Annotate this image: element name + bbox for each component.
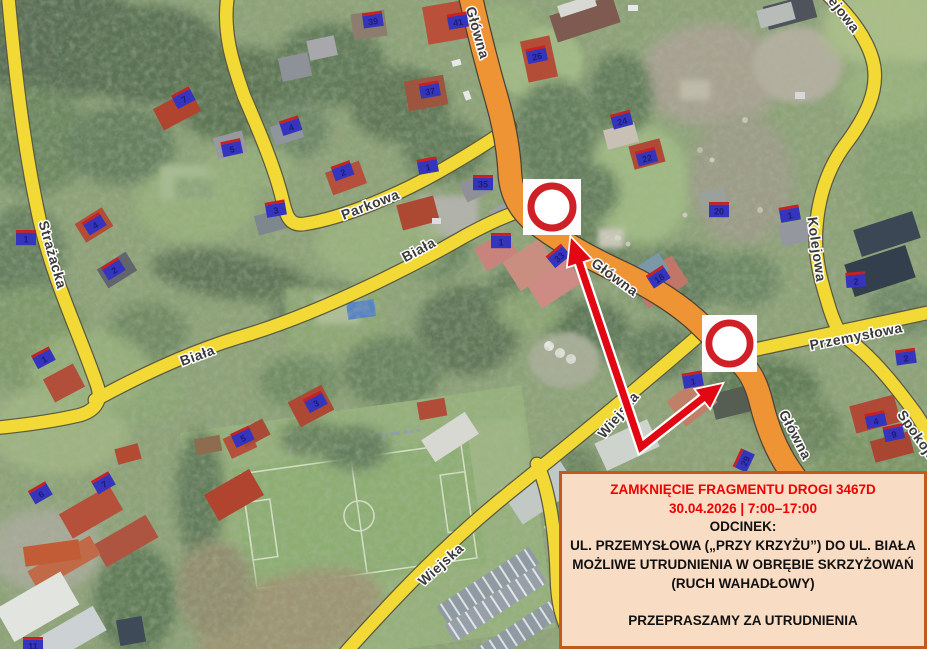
svg-text:35: 35 [478, 180, 488, 190]
svg-text:20: 20 [714, 207, 724, 217]
svg-text:39: 39 [367, 16, 378, 27]
svg-text:26: 26 [531, 51, 543, 63]
svg-text:41: 41 [452, 17, 464, 29]
svg-text:37: 37 [424, 86, 436, 98]
svg-text:2: 2 [853, 276, 859, 286]
svg-text:1: 1 [23, 235, 28, 245]
svg-text:11: 11 [28, 642, 38, 649]
svg-text:1: 1 [498, 238, 503, 248]
